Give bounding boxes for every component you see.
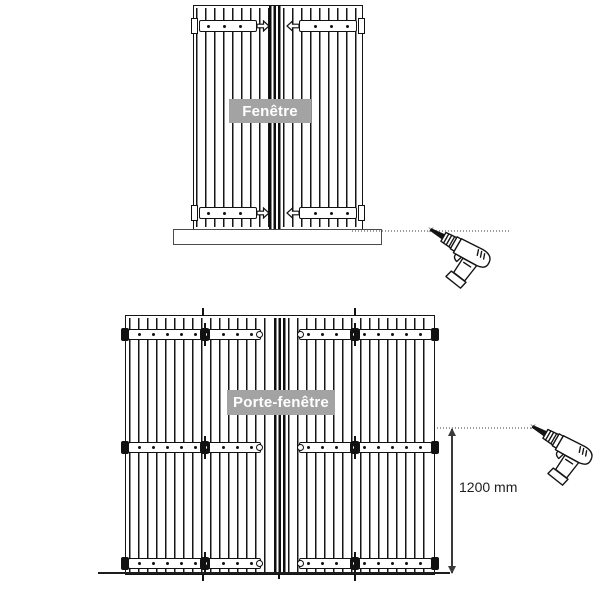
hinge-knuckle-icon (200, 557, 210, 570)
window-sill (173, 229, 382, 245)
strap-hinge-arrow-icon (256, 207, 270, 219)
shutter-batten (299, 20, 357, 32)
shutter-batten (199, 207, 257, 219)
shutter-installation-diagram: Fenêtre ✕ (0, 0, 600, 600)
batten-round-end (297, 331, 304, 338)
edge-hinge-icon (431, 441, 439, 454)
center-meeting-stile (274, 318, 287, 572)
hinge-knuckle-icon (350, 441, 360, 454)
batten-bar (299, 558, 432, 569)
hinge-knuckle-icon (350, 557, 360, 570)
edge-hinge-icon (431, 557, 439, 570)
pintle-hinge-icon (191, 205, 198, 221)
door-batten (299, 558, 432, 569)
bolt-dots (138, 562, 141, 565)
batten-bar (299, 442, 432, 453)
door-batten (128, 329, 261, 340)
batten-round-end (256, 560, 263, 567)
pintle-hinge-icon (191, 18, 198, 34)
batten-round-end (256, 331, 263, 338)
ground-line (98, 572, 450, 574)
batten-bar (128, 329, 261, 340)
strap-hinge-arrow-icon (256, 20, 270, 32)
pintle-hinge-icon (358, 18, 365, 34)
bolt-dots (419, 333, 422, 336)
bolt-dots (346, 212, 349, 215)
door-batten (299, 329, 432, 340)
edge-hinge-icon (431, 328, 439, 341)
bolt-dots (419, 446, 422, 449)
door-batten (299, 442, 432, 453)
batten-round-end (256, 444, 263, 451)
strap-hinge-arrow-icon (286, 20, 300, 32)
door-batten (128, 442, 261, 453)
bolt-dots (138, 446, 141, 449)
batten-bar (299, 329, 432, 340)
batten-round-end (297, 560, 304, 567)
hinge-knuckle-icon (200, 328, 210, 341)
shutter-batten (199, 20, 257, 32)
bolt-dots (419, 562, 422, 565)
dimension-label: 1200 mm (459, 479, 517, 495)
bolt-dots (207, 25, 210, 28)
bolt-dots (138, 333, 141, 336)
batten-bar (128, 558, 261, 569)
hinge-pin-icon (354, 308, 356, 316)
hinge-pin-icon (354, 573, 356, 581)
dimension-line (451, 429, 453, 573)
french-door-label: Porte-fenêtre (227, 390, 335, 415)
pintle-hinge-icon (358, 205, 365, 221)
hinge-knuckle-icon (350, 328, 360, 341)
french-door-shutter-pair (125, 315, 435, 575)
batten-bar (128, 442, 261, 453)
drill-icon (529, 421, 597, 489)
drill-icon (427, 224, 495, 292)
bolt-dots (346, 25, 349, 28)
hinge-pin-icon (202, 573, 204, 581)
shutter-batten (299, 207, 357, 219)
hinge-pin-icon (202, 308, 204, 316)
batten-round-end (297, 444, 304, 451)
window-label: Fenêtre (229, 99, 311, 123)
door-batten (128, 558, 261, 569)
hinge-knuckle-icon (200, 441, 210, 454)
bolt-dots (207, 212, 210, 215)
strap-hinge-arrow-icon (286, 207, 300, 219)
